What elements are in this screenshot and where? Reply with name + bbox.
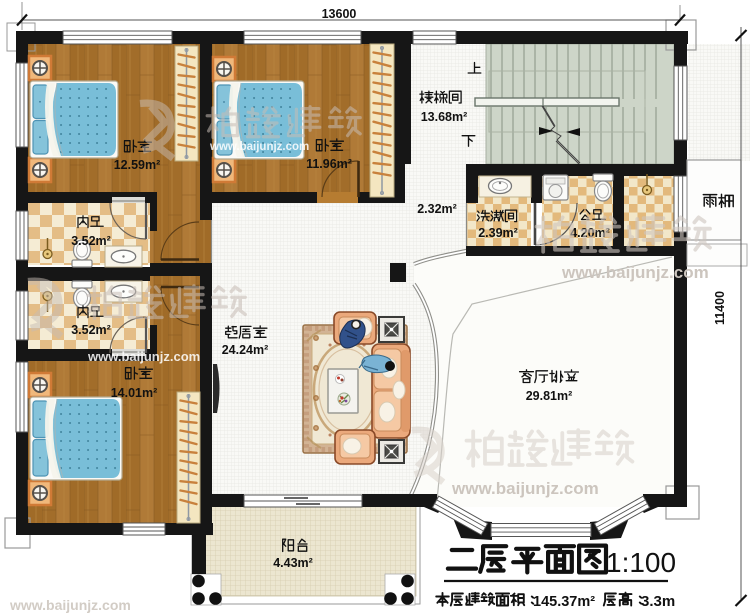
svg-text:13600: 13600 (322, 7, 357, 21)
svg-text:2.39m²: 2.39m² (478, 226, 518, 240)
svg-text:12.59m²: 12.59m² (114, 158, 161, 172)
svg-text:1:100: 1:100 (606, 547, 676, 578)
svg-text:4.43m²: 4.43m² (273, 556, 313, 570)
svg-text:11400: 11400 (713, 291, 727, 325)
svg-text:3.3m: 3.3m (641, 593, 675, 610)
svg-text:2.32m²: 2.32m² (417, 202, 457, 216)
svg-text:www.baijunjz.com: www.baijunjz.com (9, 597, 131, 613)
svg-text:14.01m²: 14.01m² (111, 386, 158, 400)
svg-text:24.24m²: 24.24m² (222, 343, 269, 357)
svg-text:www.baijunjz.com: www.baijunjz.com (209, 141, 309, 153)
svg-text:www.baijunjz.com: www.baijunjz.com (87, 349, 200, 364)
svg-text:3.52m²: 3.52m² (71, 234, 111, 248)
svg-text:29.81m²: 29.81m² (526, 389, 573, 403)
svg-text:13.68m²: 13.68m² (421, 110, 468, 124)
svg-text:11.96m²: 11.96m² (306, 157, 352, 171)
svg-text:3.52m²: 3.52m² (71, 323, 111, 337)
svg-text:www.baijunjz.com: www.baijunjz.com (561, 263, 709, 282)
svg-text:www.baijunjz.com: www.baijunjz.com (451, 479, 599, 498)
svg-text:145.37m²: 145.37m² (533, 594, 595, 610)
